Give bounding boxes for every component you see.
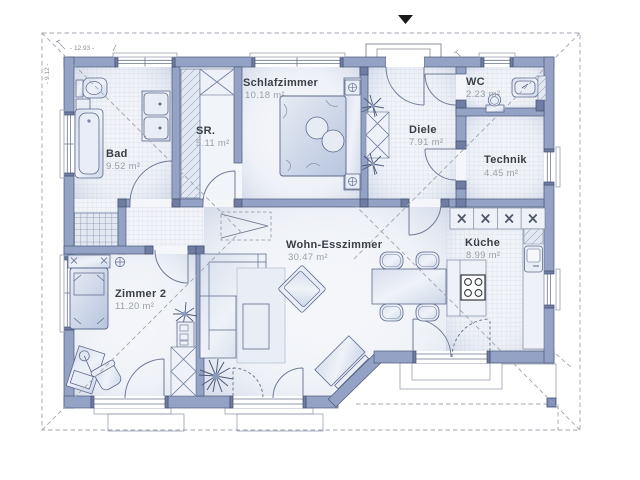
- svg-text:Küche: Küche: [465, 237, 500, 249]
- svg-text:Zimmer 2: Zimmer 2: [115, 288, 166, 300]
- svg-text:Wohn-Esszimmer: Wohn-Esszimmer: [286, 239, 383, 251]
- svg-text:WC: WC: [466, 76, 485, 88]
- svg-text:7.91 m²: 7.91 m²: [409, 137, 443, 148]
- svg-text:- 9.12 -: - 9.12 -: [44, 63, 51, 84]
- svg-text:Bad: Bad: [106, 148, 128, 160]
- svg-text:11.20 m²: 11.20 m²: [115, 301, 154, 312]
- svg-text:4.45 m²: 4.45 m²: [484, 168, 518, 179]
- svg-text:10.18 m²: 10.18 m²: [245, 90, 285, 101]
- svg-text:SR.: SR.: [196, 125, 215, 137]
- svg-text:2.23 m²: 2.23 m²: [466, 89, 500, 100]
- svg-text:Diele: Diele: [409, 124, 437, 136]
- svg-text:30.47 m²: 30.47 m²: [288, 252, 328, 263]
- svg-text:9.52 m²: 9.52 m²: [106, 161, 140, 172]
- svg-text:Technik: Technik: [484, 154, 527, 166]
- svg-text:8.99 m²: 8.99 m²: [466, 250, 500, 261]
- svg-text:Schlafzimmer: Schlafzimmer: [243, 77, 319, 89]
- svg-text:5.11 m²: 5.11 m²: [196, 138, 230, 149]
- svg-text:- 12.93 -: - 12.93 -: [70, 45, 94, 52]
